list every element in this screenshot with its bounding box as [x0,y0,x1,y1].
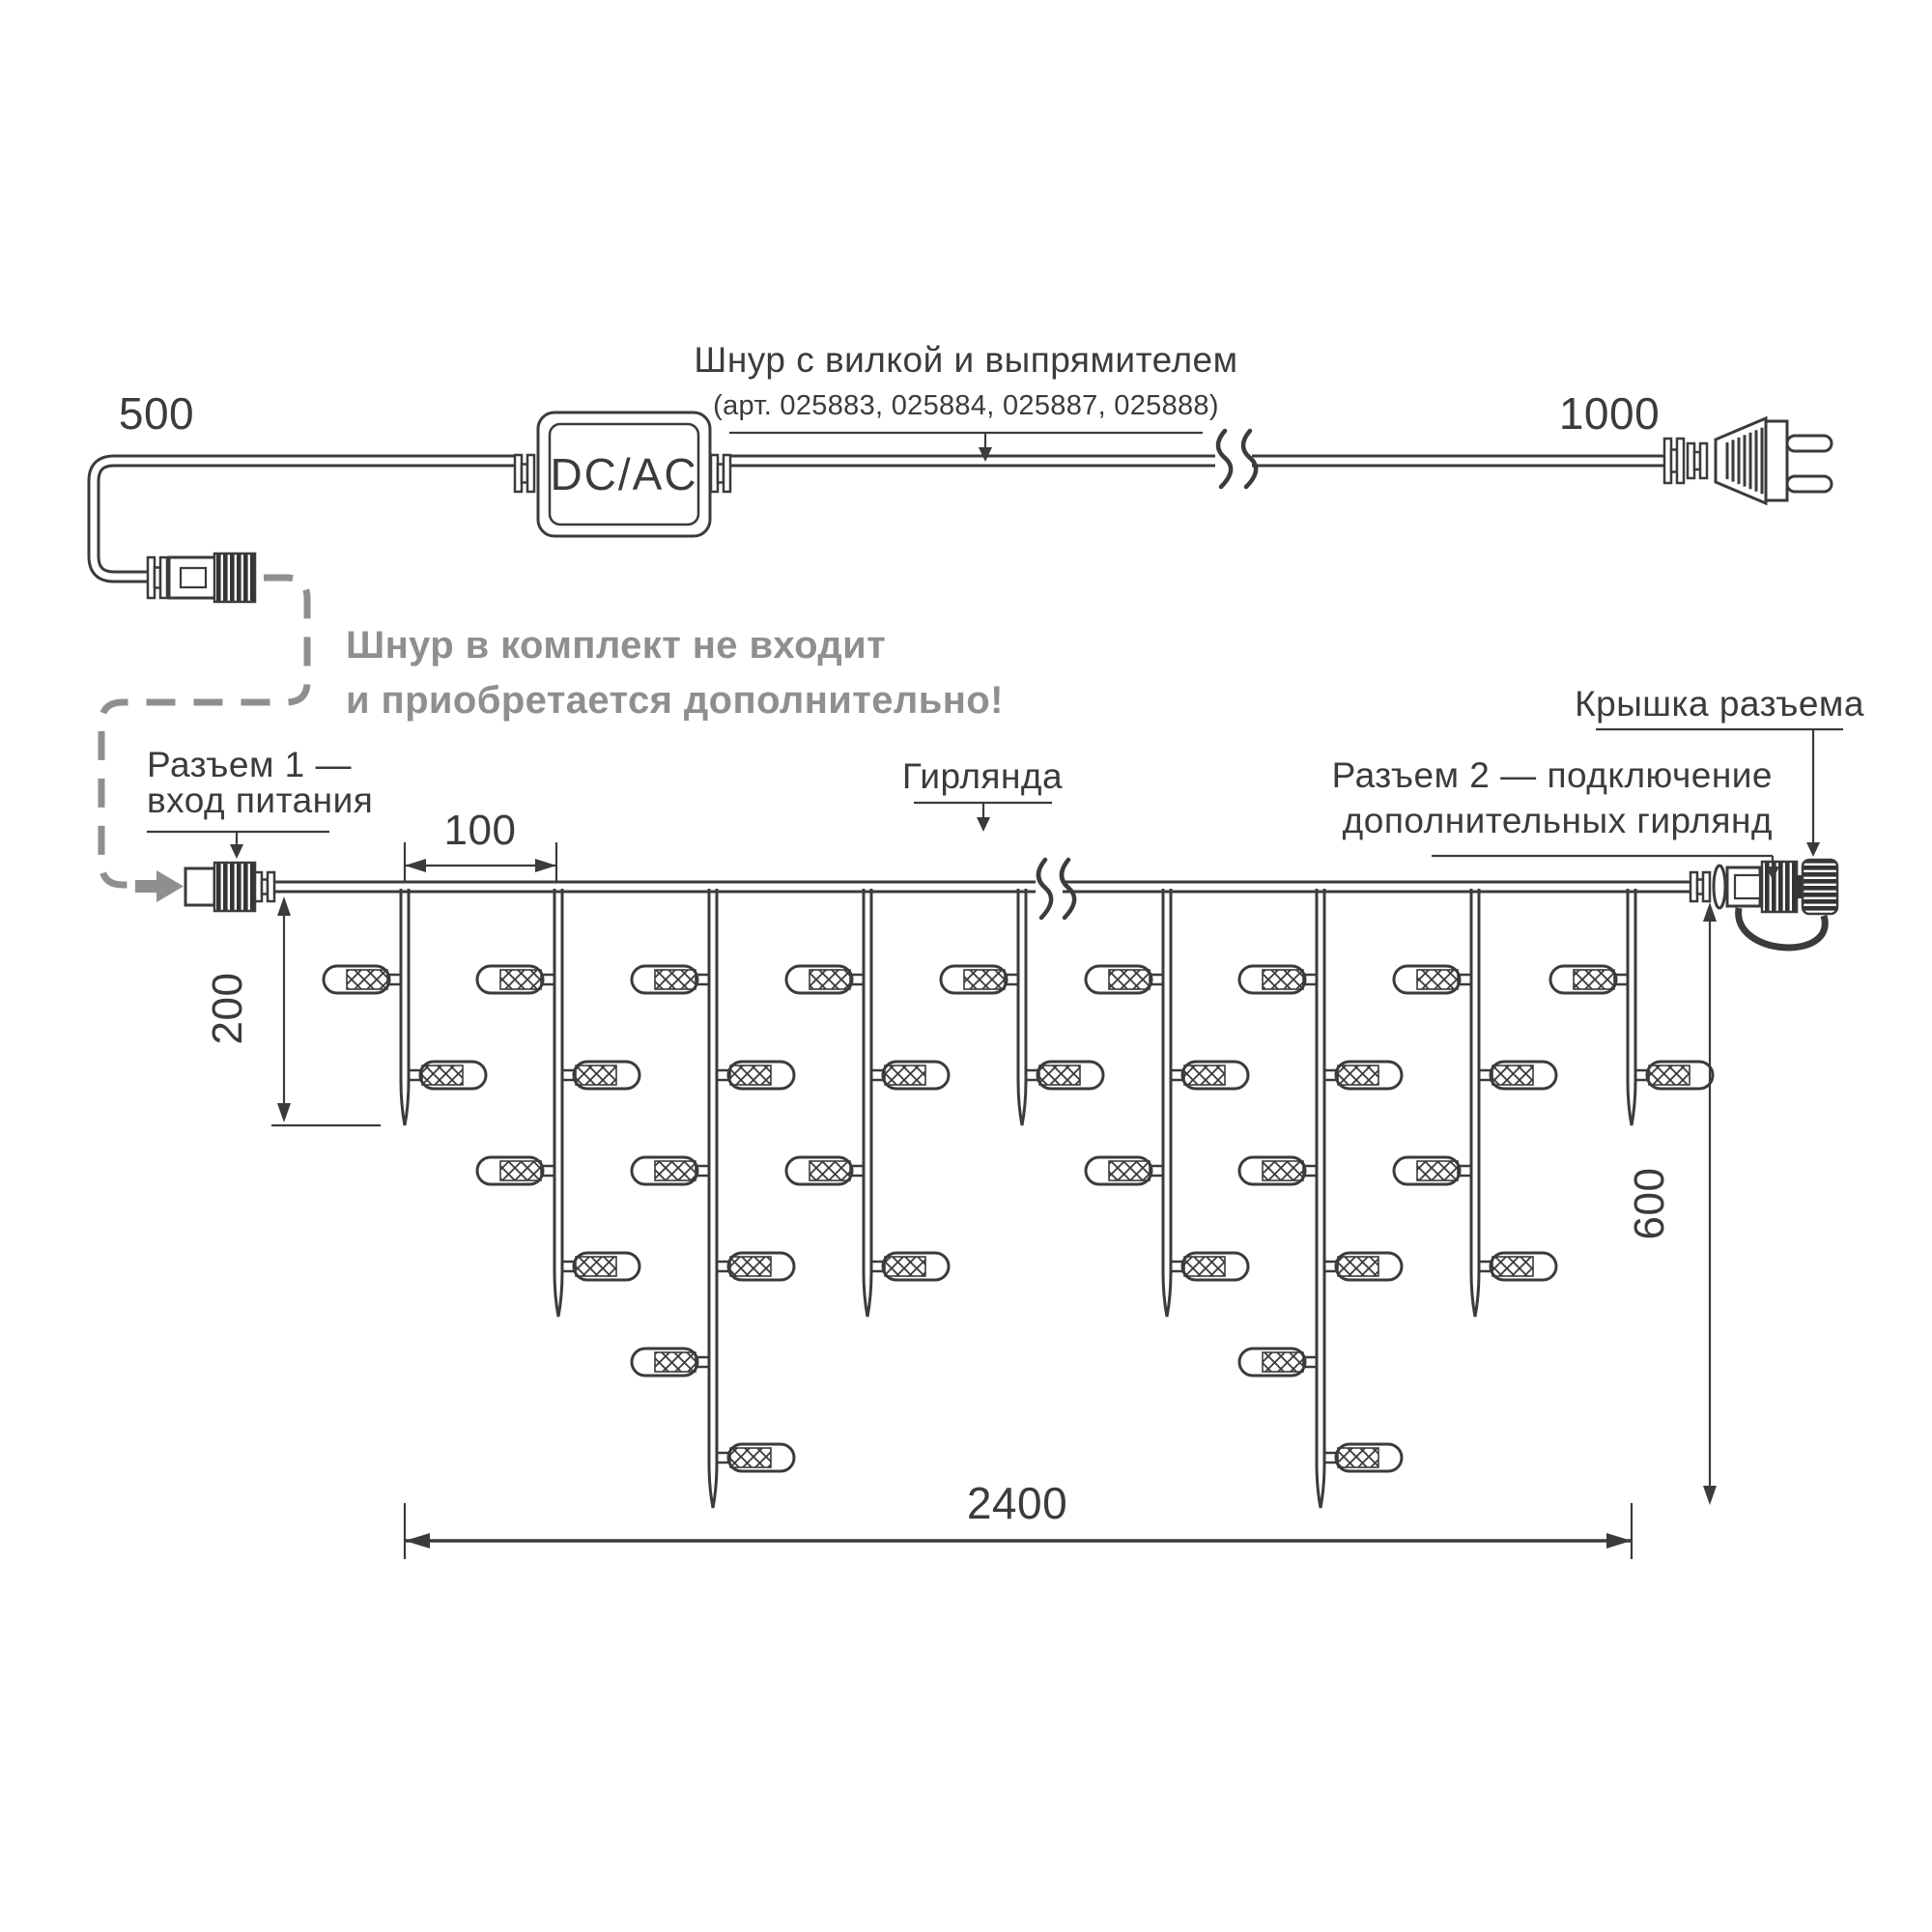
led-bulb [1394,966,1472,993]
dim-arrow-up-icon [1703,902,1717,922]
led-bulb [1086,1157,1164,1184]
led-bulb [1239,966,1318,993]
dcac-converter: DC/AC [538,412,710,536]
leader-arrow-down-icon [977,817,990,832]
led-bulb [632,1349,710,1376]
connector-1 [185,863,255,911]
garland-label-text: Гирлянда [902,756,1063,796]
dimension-100-label: 100 [444,807,517,854]
dim-arrow-left-icon [405,859,426,872]
icicle-drops [324,889,1713,1508]
connector2-label-line1: Разъем 2 — подключение [1332,755,1773,795]
led-bulb [1323,1062,1402,1089]
connector1-label-line1: Разъем 1 — [147,745,352,784]
led-bulb [324,966,402,993]
knurled-nut [214,863,255,911]
garland-wiring-diagram: 500 DC/AC 1000 Шнур с вилкой и выпрямите… [0,0,1932,1932]
icicle-drop [1086,889,1248,1317]
dim-arrow-up-icon [277,896,291,916]
dcac-label: DC/AC [550,449,697,499]
cable-gland-icon [515,455,534,492]
led-bulb [477,966,555,993]
cable-gland-icon [148,557,167,598]
garland-cable [274,860,1695,918]
led-bulb [716,1062,794,1089]
icicle-drop [477,889,639,1317]
power-cord-section: 500 DC/AC 1000 Шнур с вилкой и выпрямите… [94,340,1832,602]
note-line2: и приобретается дополнительно! [346,679,1004,722]
dimension-200-label: 200 [204,973,251,1045]
power-plug [1716,418,1832,503]
led-bulb [561,1253,639,1280]
led-bulb [1025,1062,1103,1089]
dim-arrow-down-icon [1703,1486,1717,1505]
icicle-drop [324,889,486,1125]
led-bulb [1323,1253,1402,1280]
led-bulb [1170,1062,1248,1089]
plug-prong-top [1787,436,1832,451]
cord-connector [169,554,255,602]
led-bulb [716,1444,794,1471]
led-bulb [941,966,1019,993]
cable-gland-icon [1688,443,1707,478]
led-bulb [1239,1349,1318,1376]
note-line1: Шнур в комплект не входит [346,624,886,667]
led-bulb [1323,1444,1402,1471]
icicle-drop [632,889,794,1508]
led-bulb [716,1253,794,1280]
dim-arrow-left-icon [405,1533,430,1548]
diagram-page: 500 DC/AC 1000 Шнур с вилкой и выпрямите… [0,0,1932,1932]
connector1-label: Разъем 1 — вход питания [147,745,373,859]
connector2-label: Разъем 2 — подключение дополнительных ги… [1332,755,1779,880]
cap-label-text: Крышка разъема [1575,684,1864,724]
led-bulb [1086,966,1164,993]
led-bulb [870,1253,949,1280]
dimension-1000-label: 1000 [1559,388,1660,439]
dimension-600-label: 600 [1626,1168,1673,1240]
dimension-2400: 2400 [405,1478,1632,1559]
garland-label: Гирлянда [902,756,1063,832]
knurled-nut [214,554,255,602]
dim-arrow-down-icon [277,1103,291,1122]
led-bulb [561,1062,639,1089]
cord-500 [94,461,517,577]
dimension-200: 200 [204,896,381,1125]
led-bulb [632,966,710,993]
led-bulb [1170,1253,1248,1280]
led-bulb [1478,1062,1556,1089]
icicle-drop [1550,889,1713,1125]
connector-cap [1803,860,1837,914]
led-bulb [1478,1253,1556,1280]
plug-prong-bottom [1787,476,1832,492]
cable-gland-icon [1664,439,1684,483]
dim-arrow-right-icon [535,859,556,872]
led-bulb [786,966,865,993]
led-bulb [870,1062,949,1089]
cable-gland-icon [1690,872,1710,901]
dimension-100: 100 [405,807,556,883]
led-bulb [1550,966,1629,993]
icicle-drop [786,889,949,1317]
led-bulb [1239,1157,1318,1184]
led-bulb [408,1062,486,1089]
dashed-path [101,578,307,885]
icicle-drop [941,889,1103,1125]
dimension-2400-label: 2400 [967,1478,1067,1528]
led-bulb [1634,1062,1713,1089]
cable-break-icon [1038,860,1074,918]
icicle-drop [1239,889,1402,1508]
cord-label-articles: (арт. 025883, 025884, 025887, 025888) [713,390,1219,421]
cord-label: Шнур с вилкой и выпрямителем (арт. 02588… [694,340,1237,462]
cord-label-title: Шнур с вилкой и выпрямителем [694,340,1237,380]
led-bulb [786,1157,865,1184]
dimension-600: 600 [1626,902,1717,1505]
cord-1000 [731,431,1664,487]
cord-break-icon [1218,431,1256,487]
dimension-500-label: 500 [119,388,194,439]
led-bulb [632,1157,710,1184]
icicle-drop [1394,889,1556,1317]
connector2-label-line2: дополнительных гирлянд [1343,801,1773,840]
gray-arrow-icon [156,870,184,902]
leader-arrow-down-icon [1806,842,1820,857]
cable-gland-icon [711,455,730,492]
leader-arrow-down-icon [230,844,243,859]
connector1-label-line2: вход питания [147,781,373,820]
garland-section: Разъем 1 — вход питания Гирлянда [147,684,1864,1508]
cable-gland-icon [255,872,274,901]
dim-arrow-right-icon [1606,1533,1632,1548]
led-bulb [477,1157,555,1184]
led-bulb [1394,1157,1472,1184]
